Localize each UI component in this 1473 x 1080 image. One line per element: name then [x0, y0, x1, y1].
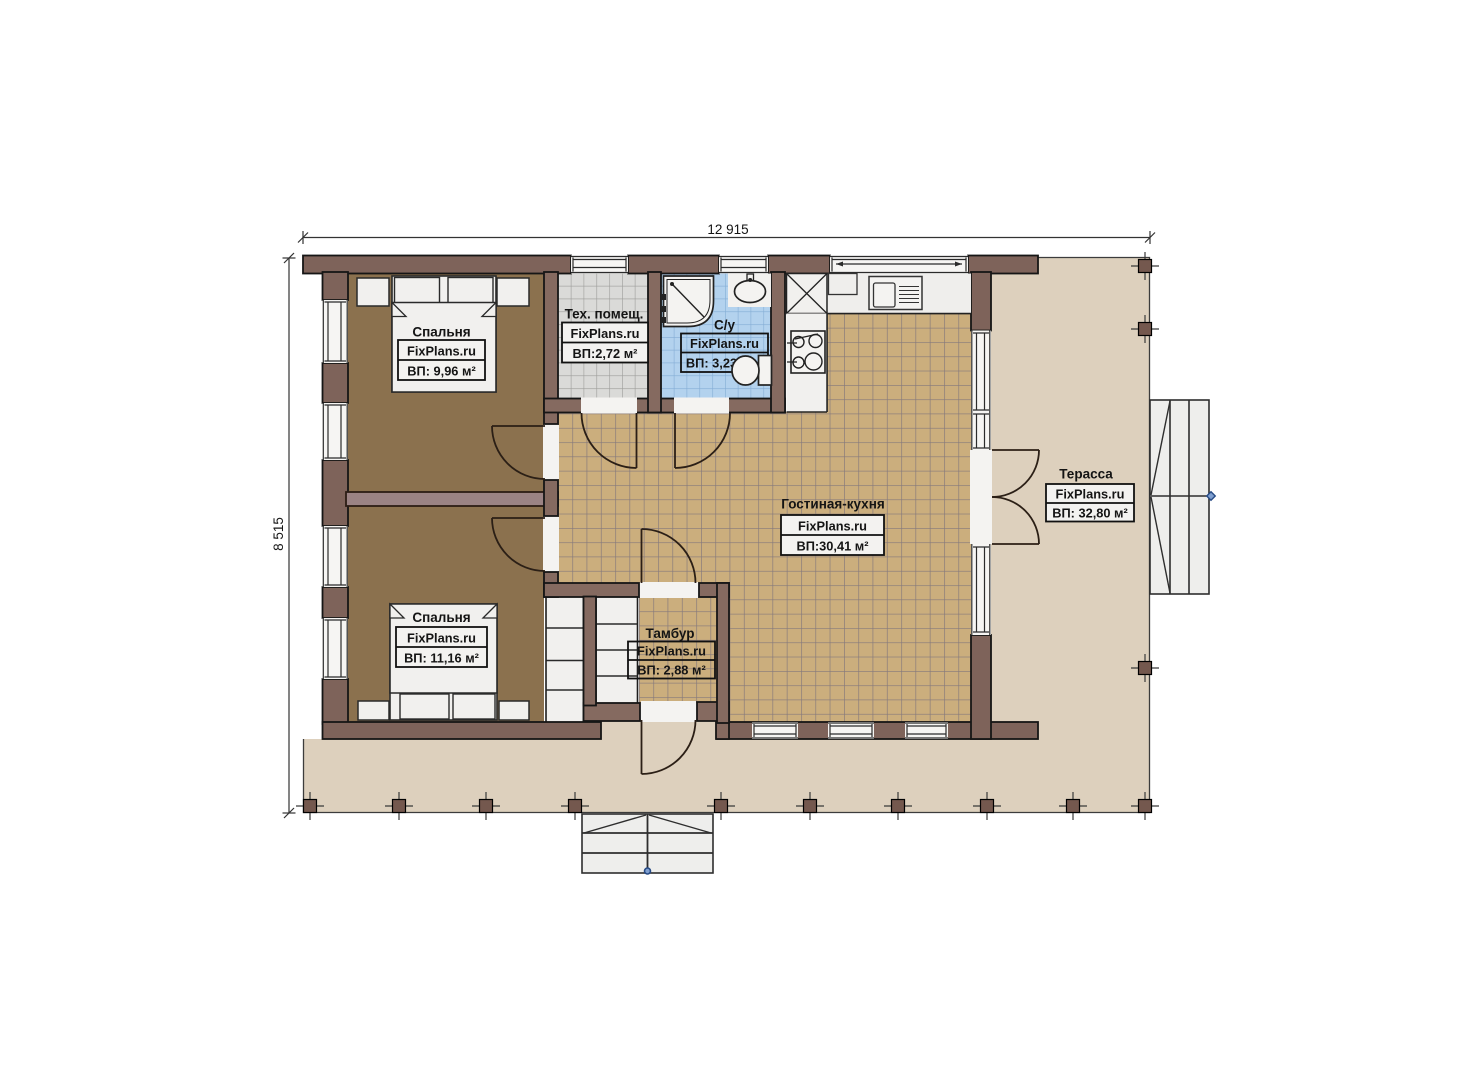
svg-text:Гостиная-кухня: Гостиная-кухня — [781, 497, 884, 512]
svg-text:Спальня: Спальня — [412, 325, 470, 340]
svg-text:8 515: 8 515 — [271, 517, 286, 551]
svg-text:FixPlans.ru: FixPlans.ru — [637, 644, 706, 659]
svg-text:ВП: 9,96 м²: ВП: 9,96 м² — [407, 364, 475, 379]
svg-text:Тамбур: Тамбур — [646, 626, 695, 641]
svg-text:Терасса: Терасса — [1059, 467, 1113, 482]
svg-text:ВП: 11,16 м²: ВП: 11,16 м² — [404, 651, 479, 666]
svg-text:FixPlans.ru: FixPlans.ru — [407, 631, 476, 646]
svg-text:Тех. помещ.: Тех. помещ. — [565, 307, 644, 322]
svg-text:С/у: С/у — [714, 318, 736, 333]
svg-text:FixPlans.ru: FixPlans.ru — [407, 344, 476, 359]
svg-text:ВП:2,72 м²: ВП:2,72 м² — [573, 346, 638, 361]
svg-text:ВП: 32,80 м²: ВП: 32,80 м² — [1052, 506, 1128, 521]
svg-text:12 915: 12 915 — [707, 222, 748, 237]
svg-text:FixPlans.ru: FixPlans.ru — [1056, 487, 1125, 502]
svg-text:FixPlans.ru: FixPlans.ru — [571, 326, 640, 341]
svg-text:FixPlans.ru: FixPlans.ru — [690, 336, 759, 351]
svg-text:Спальня: Спальня — [412, 610, 470, 625]
svg-text:ВП:30,41 м²: ВП:30,41 м² — [796, 539, 868, 554]
svg-text:ВП: 2,88 м²: ВП: 2,88 м² — [637, 663, 705, 678]
svg-text:FixPlans.ru: FixPlans.ru — [798, 519, 867, 534]
